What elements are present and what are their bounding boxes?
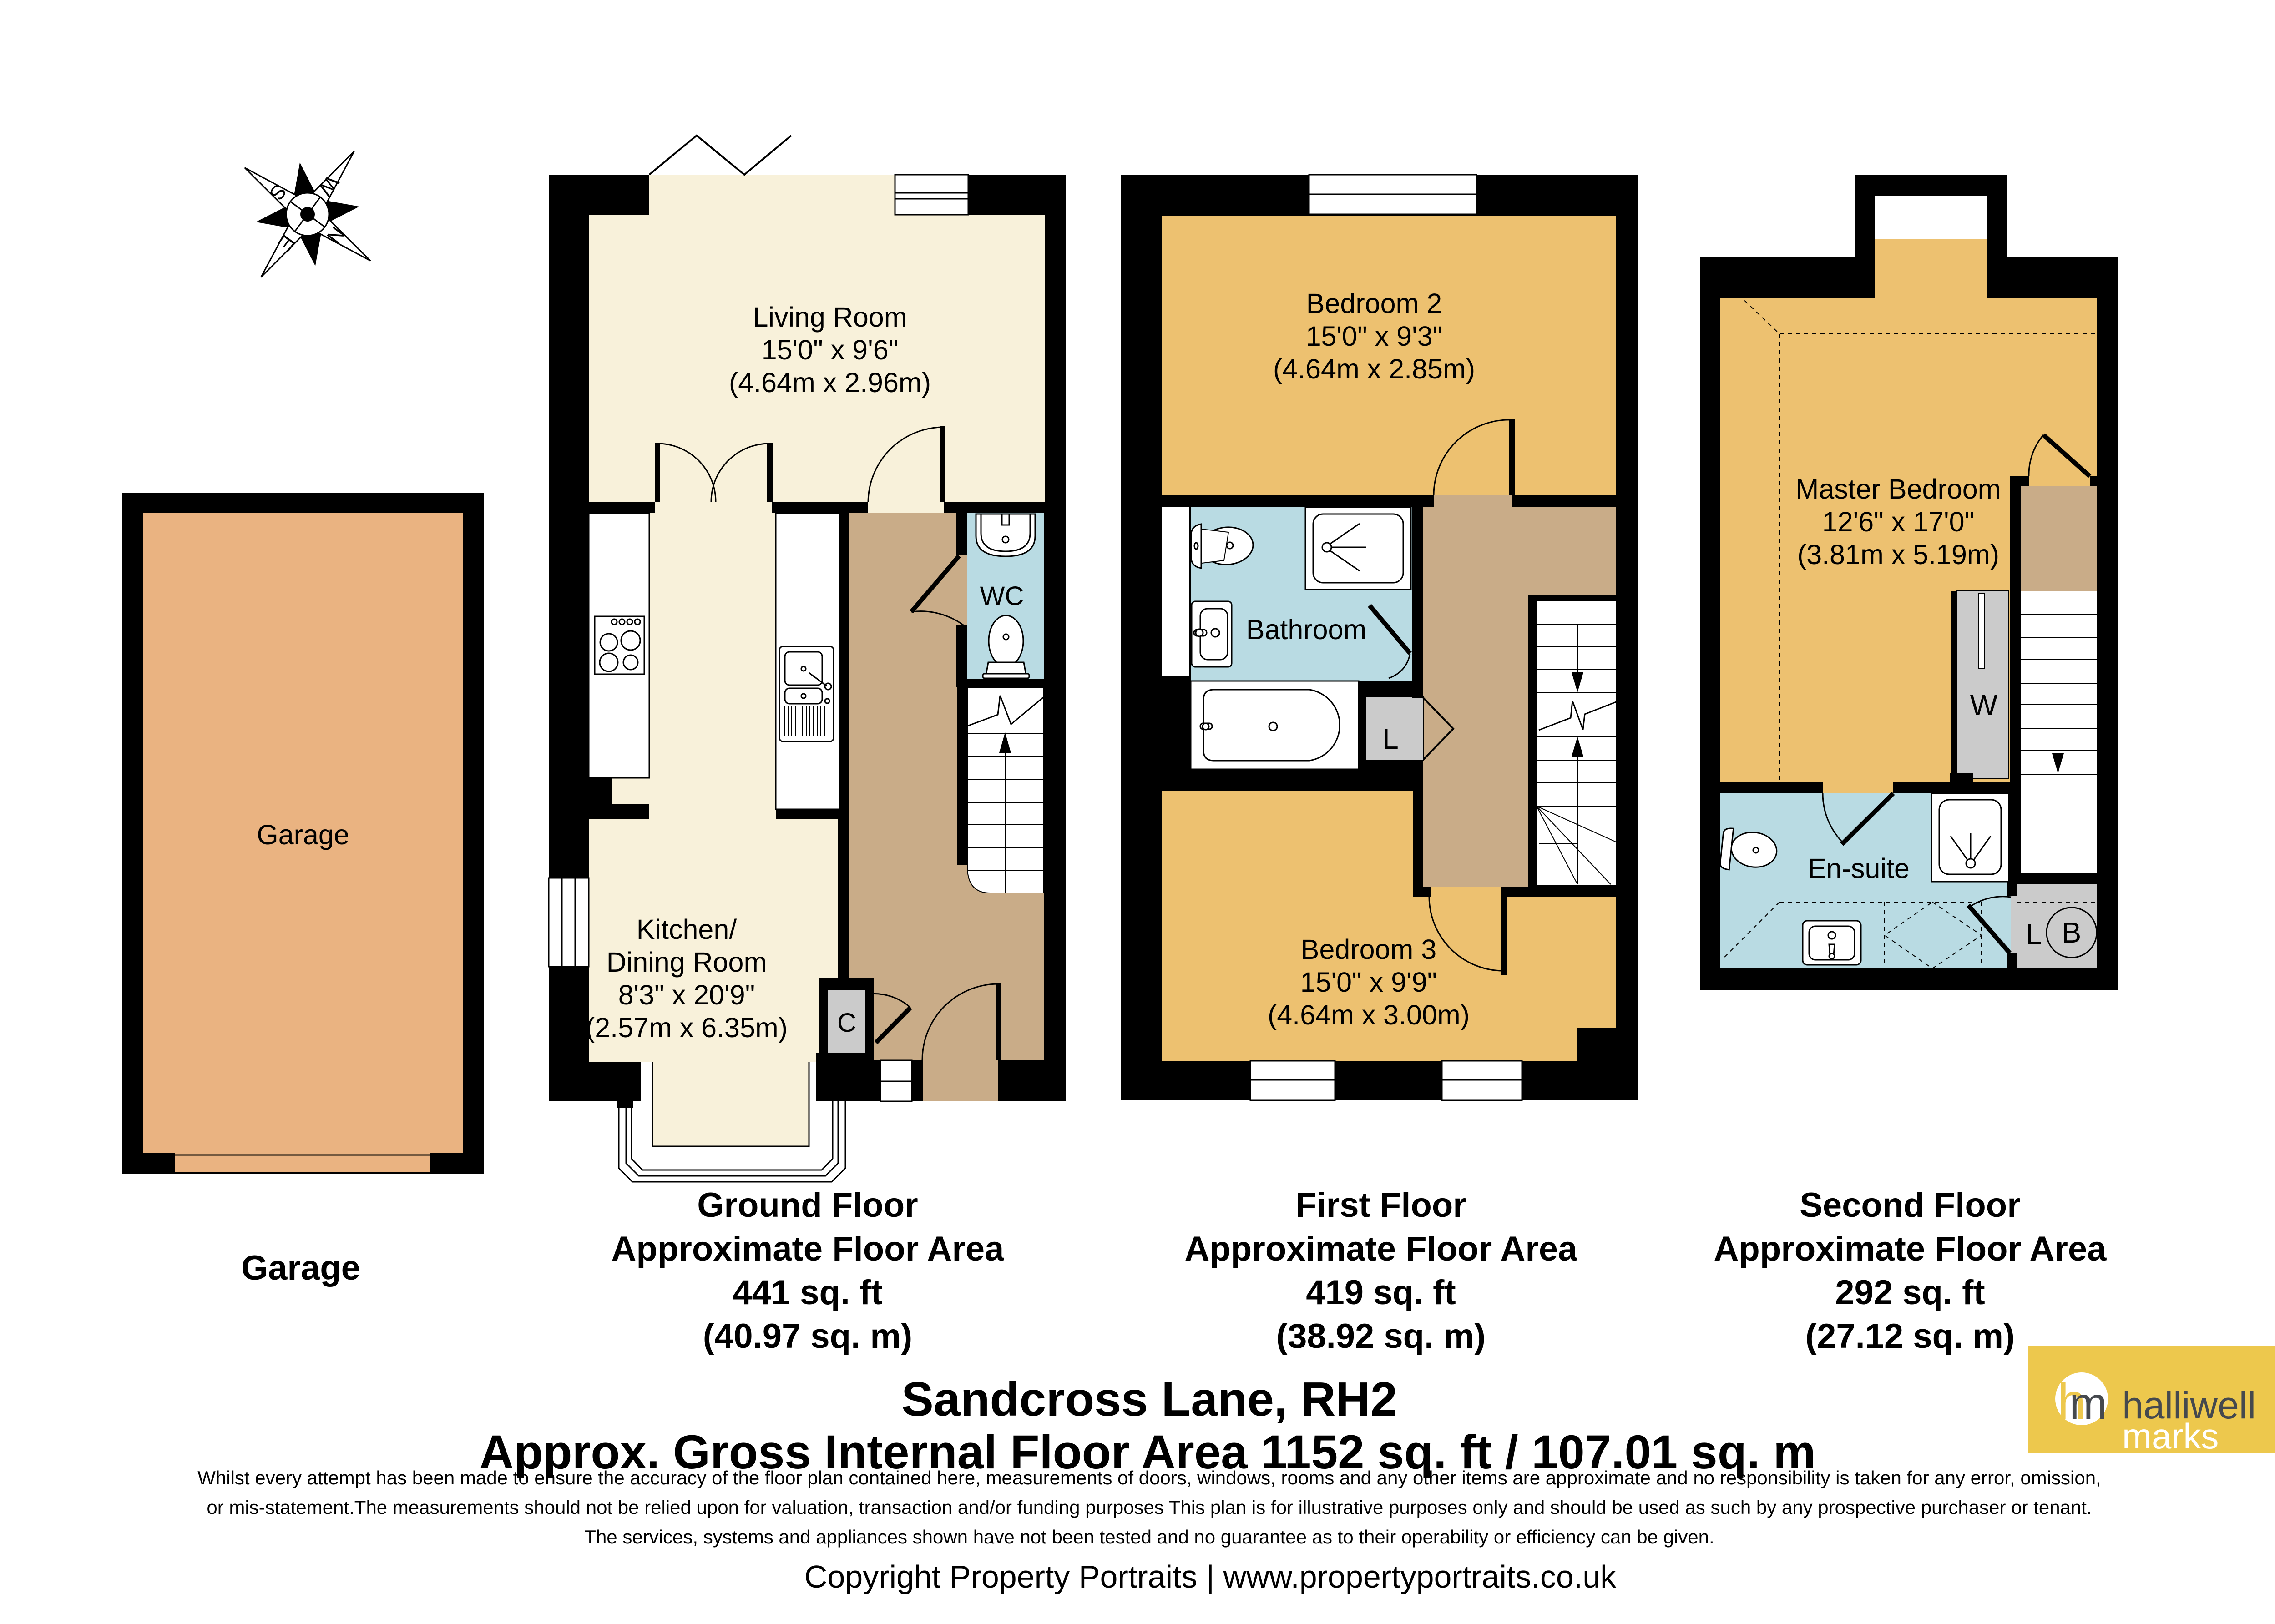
svg-text:Copyright Property Portraits |: Copyright Property Portraits | www.prope… [804, 1559, 1617, 1594]
svg-text:Second Floor: Second Floor [1800, 1186, 2021, 1225]
svg-text:(27.12 sq. m): (27.12 sq. m) [1805, 1317, 2015, 1356]
svg-text:292 sq. ft: 292 sq. ft [1835, 1273, 1985, 1312]
svg-text:Sandcross Lane, RH2: Sandcross Lane, RH2 [901, 1372, 1397, 1426]
svg-text:(4.64m x 2.96m): (4.64m x 2.96m) [729, 367, 931, 398]
svg-text:(4.64m x 2.85m): (4.64m x 2.85m) [1273, 353, 1475, 384]
svg-text:8'3" x 20'9": 8'3" x 20'9" [618, 979, 755, 1010]
svg-text:Garage: Garage [241, 1249, 360, 1287]
svg-text:15'0" x 9'6": 15'0" x 9'6" [762, 334, 899, 365]
svg-text:WC: WC [980, 581, 1024, 611]
svg-text:Kitchen/: Kitchen/ [637, 914, 737, 945]
svg-text:marks: marks [2122, 1416, 2219, 1456]
svg-text:Garage: Garage [257, 819, 349, 850]
svg-text:(40.97 sq. m): (40.97 sq. m) [703, 1317, 912, 1356]
svg-text:15'0" x 9'9": 15'0" x 9'9" [1300, 967, 1437, 998]
svg-text:or mis-statement.The measureme: or mis-statement.The measurements should… [207, 1497, 2092, 1518]
svg-text:En-suite: En-suite [1808, 853, 1910, 884]
svg-text:Bathroom: Bathroom [1246, 614, 1366, 645]
svg-text:441 sq. ft: 441 sq. ft [733, 1273, 882, 1312]
svg-text:L: L [2026, 918, 2042, 950]
svg-text:(38.92 sq. m): (38.92 sq. m) [1276, 1317, 1486, 1356]
svg-text:C: C [837, 1008, 856, 1038]
svg-text:(2.57m x 6.35m): (2.57m x 6.35m) [586, 1012, 788, 1043]
svg-text:Bedroom 2: Bedroom 2 [1306, 288, 1442, 319]
svg-text:L: L [1382, 722, 1399, 755]
svg-text:B: B [2062, 916, 2082, 949]
svg-text:15'0" x 9'3": 15'0" x 9'3" [1306, 321, 1443, 352]
svg-text:Approximate Floor Area: Approximate Floor Area [1714, 1230, 2107, 1268]
svg-text:Ground Floor: Ground Floor [697, 1186, 918, 1225]
svg-text:m: m [2069, 1378, 2107, 1429]
svg-text:Dining Room: Dining Room [607, 947, 767, 978]
svg-text:Approximate Floor Area: Approximate Floor Area [1185, 1230, 1578, 1268]
svg-text:W: W [1970, 689, 1998, 721]
svg-text:The services, systems and appl: The services, systems and appliances sho… [584, 1526, 1714, 1548]
svg-text:419 sq. ft: 419 sq. ft [1306, 1273, 1456, 1312]
svg-text:12'6" x 17'0": 12'6" x 17'0" [1822, 506, 1975, 537]
svg-text:Bedroom 3: Bedroom 3 [1301, 934, 1436, 965]
svg-text:Master Bedroom: Master Bedroom [1796, 474, 2001, 504]
svg-text:(3.81m x 5.19m): (3.81m x 5.19m) [1797, 539, 1999, 570]
svg-text:(4.64m x 3.00m): (4.64m x 3.00m) [1268, 999, 1470, 1030]
svg-text:Approximate Floor Area: Approximate Floor Area [612, 1230, 1005, 1268]
svg-text:Whilst every attempt has been: Whilst every attempt has been made to en… [197, 1467, 2101, 1488]
svg-text:First Floor: First Floor [1295, 1186, 1466, 1225]
svg-text:Living Room: Living Room [753, 302, 907, 333]
